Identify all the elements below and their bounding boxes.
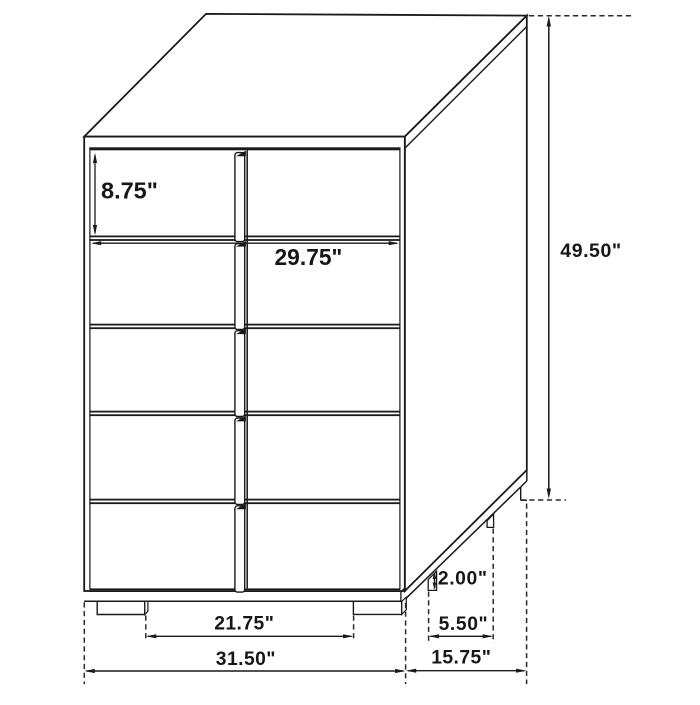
- svg-text:8.75": 8.75": [101, 178, 158, 204]
- svg-text:2.00": 2.00": [438, 568, 488, 589]
- svg-text:31.50": 31.50": [216, 649, 276, 670]
- svg-text:29.75": 29.75": [275, 244, 343, 270]
- svg-text:21.75": 21.75": [214, 613, 274, 634]
- svg-text:49.50": 49.50": [560, 240, 621, 262]
- svg-text:5.50": 5.50": [439, 614, 489, 635]
- svg-text:15.75": 15.75": [431, 647, 491, 668]
